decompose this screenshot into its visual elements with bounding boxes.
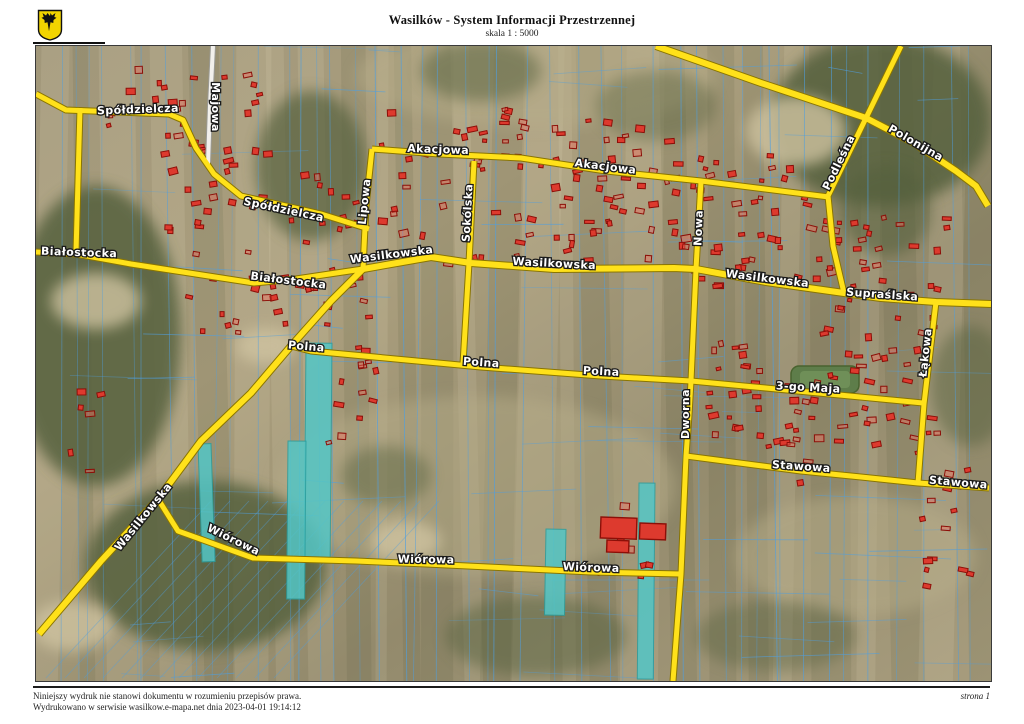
map-canvas: SpółdzielczaMajowaSpółdzielczaBiałostock…: [35, 45, 992, 682]
logo-divider: [33, 42, 105, 44]
street-label-dworna: Dworna: [679, 389, 692, 439]
street-label-polna: Polna: [583, 364, 620, 379]
footer-divider: [33, 686, 990, 688]
street-label-wiórowa: Wiórowa: [398, 553, 455, 567]
street-label-polna: Polna: [463, 355, 500, 371]
street-label-akacjowa: Akacjowa: [407, 142, 469, 157]
street-label-wiórowa: Wiórowa: [562, 560, 619, 575]
footer-printed-info: Wydrukowano w serwisie wasilkow.e-mapa.n…: [33, 702, 301, 712]
scale-label: skala 1 : 5000: [0, 29, 1024, 39]
street-label-majowa: Majowa: [209, 82, 222, 132]
street-label-białostocka: Białostocka: [41, 245, 118, 261]
street-label-nowa: Nowa: [691, 210, 705, 246]
footer-disclaimer: Niniejszy wydruk nie stanowi dokumentu w…: [33, 691, 301, 701]
page-title: Wasilków - System Informacji Przestrzenn…: [0, 13, 1024, 28]
print-page: Wasilków - System Informacji Przestrzenn…: [0, 0, 1024, 724]
aerial-map: SpółdzielczaMajowaSpółdzielczaBiałostock…: [36, 46, 991, 681]
footer-page-number: strona 1: [961, 691, 990, 701]
